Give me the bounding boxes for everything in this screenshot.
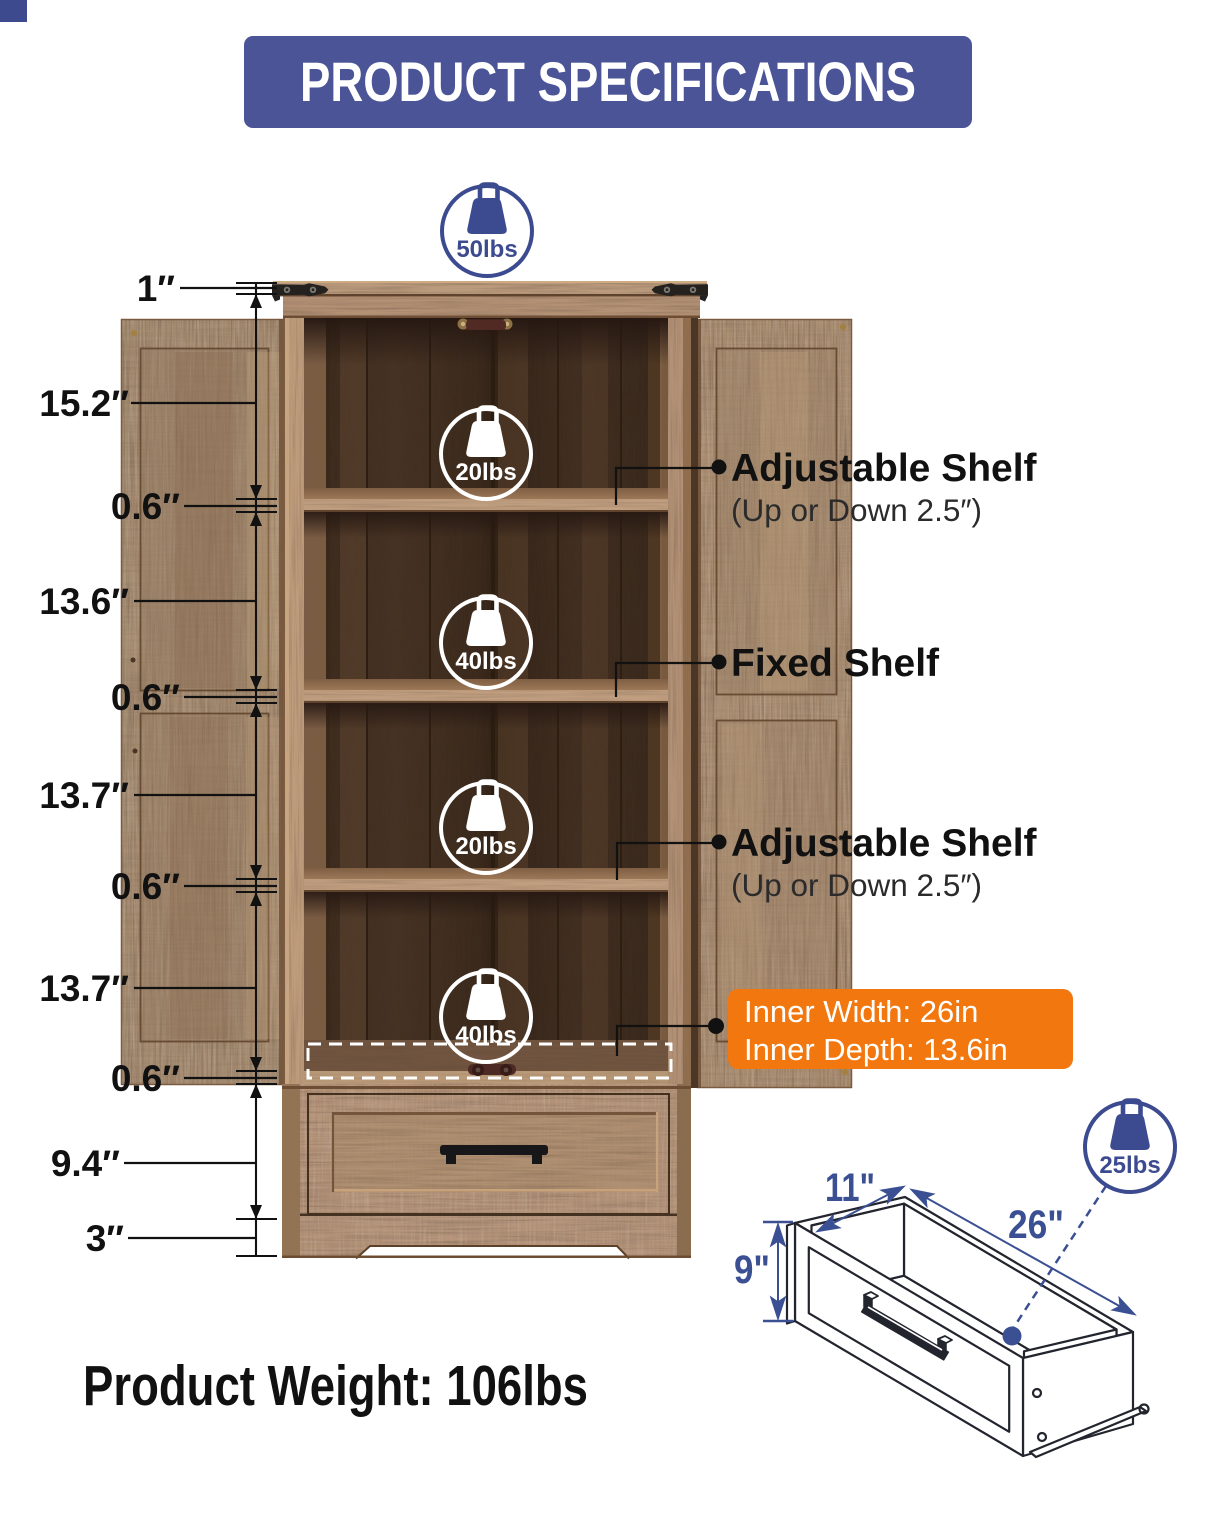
svg-text:9": 9"	[734, 1248, 770, 1292]
svg-text:20lbs: 20lbs	[455, 459, 516, 486]
svg-text:Inner Width: 26in: Inner Width: 26in	[744, 994, 978, 1029]
svg-text:20lbs: 20lbs	[455, 833, 516, 860]
svg-text:Adjustable Shelf: Adjustable Shelf	[731, 447, 1038, 490]
svg-text:Inner Depth: 13.6in: Inner Depth: 13.6in	[744, 1032, 1008, 1067]
svg-text:40lbs: 40lbs	[455, 648, 516, 675]
svg-text:Adjustable Shelf: Adjustable Shelf	[731, 822, 1038, 865]
svg-text:0.6″: 0.6″	[111, 486, 180, 527]
svg-text:15.2″: 15.2″	[39, 383, 129, 424]
svg-text:0.6″: 0.6″	[111, 677, 180, 718]
svg-text:50lbs: 50lbs	[456, 236, 517, 263]
svg-text:PRODUCT SPECIFICATIONS: PRODUCT SPECIFICATIONS	[300, 50, 916, 113]
svg-text:Fixed Shelf: Fixed Shelf	[731, 642, 940, 685]
svg-text:26": 26"	[1008, 1203, 1064, 1247]
svg-text:25lbs: 25lbs	[1099, 1152, 1160, 1179]
svg-text:(Up or Down 2.5″): (Up or Down 2.5″)	[731, 867, 982, 903]
svg-text:1″: 1″	[137, 268, 176, 309]
svg-text:13.7″: 13.7″	[39, 775, 129, 816]
svg-text:(Up or Down 2.5″): (Up or Down 2.5″)	[731, 492, 982, 528]
svg-text:11": 11"	[825, 1166, 875, 1210]
svg-text:13.6″: 13.6″	[39, 581, 129, 622]
svg-text:0.6″: 0.6″	[111, 866, 180, 907]
svg-text:13.7″: 13.7″	[39, 968, 129, 1009]
svg-text:9.4″: 9.4″	[51, 1143, 120, 1184]
svg-text:0.6″: 0.6″	[111, 1058, 180, 1099]
svg-text:Product Weight: 106lbs: Product Weight: 106lbs	[83, 1354, 588, 1418]
svg-text:3″: 3″	[86, 1218, 125, 1259]
